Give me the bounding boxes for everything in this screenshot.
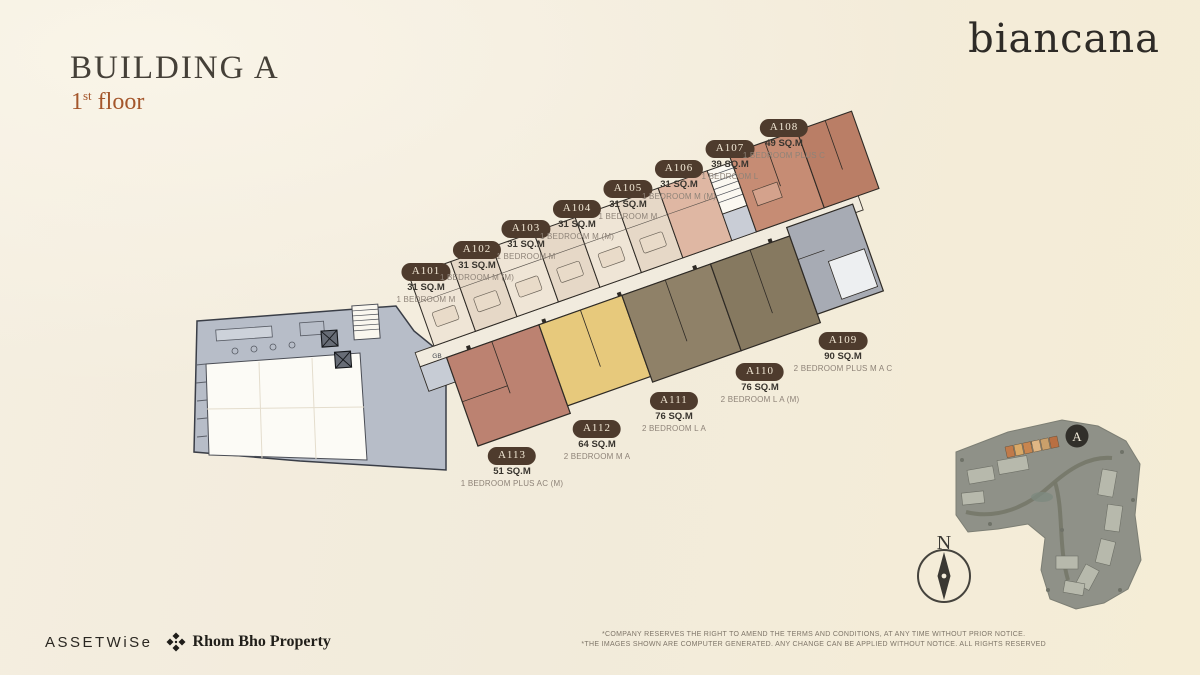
unit-badge: A110 <box>736 363 784 381</box>
unit-label-a110: A110 76 SQ.M 2 BEDROOM L A (M) <box>721 361 800 404</box>
disclaimer: *COMPANY RESERVES THE RIGHT TO AMEND THE… <box>581 630 1046 650</box>
unit-sqm: 31 SQ.M <box>540 220 614 231</box>
unit-type: 2 BEDROOM M A <box>564 452 631 461</box>
unit-sqm: 31 SQ.M <box>396 283 455 294</box>
rhombho-logo-text: Rhom Bho Property <box>193 633 331 651</box>
gb-room-label: GB <box>432 353 441 360</box>
unit-badge: A112 <box>573 420 621 438</box>
disclaimer-line-1: *COMPANY RESERVES THE RIGHT TO AMEND THE… <box>581 630 1046 640</box>
unit-type: 1 BEDROOM M <box>598 212 657 221</box>
unit-sqm: 31 SQ.M <box>598 200 657 211</box>
unit-label-a113: A113 51 SQ.M 1 BEDROOM PLUS AC (M) <box>461 445 563 488</box>
unit-sqm: 31 SQ.M <box>496 240 555 251</box>
unit-type: 2 BEDROOM L A (M) <box>721 395 800 404</box>
unit-badge: A102 <box>453 241 501 259</box>
unit-type: 1 BEDROOM M <box>396 295 455 304</box>
unit-sqm: 51 SQ.M <box>461 467 563 478</box>
unit-sqm: 31 SQ.M <box>642 180 716 191</box>
site-building-a-badge: A <box>1066 425 1089 448</box>
page: BUILDING A 1st floor biancana <box>0 0 1200 675</box>
unit-type: 1 BEDROOM PLUS AC (M) <box>461 479 563 488</box>
unit-badge: A108 <box>760 119 808 137</box>
unit-type: 1 BEDROOM M (M) <box>642 192 716 201</box>
unit-type: 1 BEDROOM M (M) <box>540 232 614 241</box>
unit-type: 2 BEDROOM PLUS M A C <box>794 364 893 373</box>
unit-sqm: 76 SQ.M <box>642 412 706 423</box>
unit-badge: A113 <box>488 447 536 465</box>
unit-type: 1 BEDROOM PLUS C <box>743 151 825 160</box>
podium-block <box>194 304 446 470</box>
unit-badge: A106 <box>655 160 703 178</box>
unit-sqm: 49 SQ.M <box>743 139 825 150</box>
unit-badge: A104 <box>553 200 601 218</box>
site-badge-letter: A <box>1072 429 1082 444</box>
unit-label-a111: A111 76 SQ.M 2 BEDROOM L A <box>642 390 706 433</box>
unit-label-a108: A108 49 SQ.M 1 BEDROOM PLUS C <box>743 117 825 160</box>
unit-sqm: 90 SQ.M <box>794 352 893 363</box>
stair-core <box>352 304 380 340</box>
rhombho-logo-wrap: Rhom Bho Property <box>166 632 331 652</box>
unit-badge: A109 <box>819 332 867 350</box>
unit-type: 1 BEDROOM L <box>702 172 759 181</box>
site-plan-inset: A <box>956 420 1141 609</box>
unit-sqm: 64 SQ.M <box>564 440 631 451</box>
unit-sqm: 76 SQ.M <box>721 383 800 394</box>
unit-sqm: 31 SQ.M <box>440 261 514 272</box>
unit-type: 1 BEDROOM M <box>496 252 555 261</box>
disclaimer-line-2: *THE IMAGES SHOWN ARE COMPUTER GENERATED… <box>581 640 1046 650</box>
unit-label-a112: A112 64 SQ.M 2 BEDROOM M A <box>564 418 631 461</box>
unit-sqm: 39 SQ.M <box>702 160 759 171</box>
unit-type: 2 BEDROOM L A <box>642 424 706 433</box>
footer-logos: ASSETWiSe Rhom Bho Property <box>45 632 331 652</box>
rhombho-diamond-icon <box>166 632 186 652</box>
assetwise-logo: ASSETWiSe <box>45 634 153 651</box>
unit-type: 1 BEDROOM M (M) <box>440 273 514 282</box>
unit-badge: A111 <box>650 392 698 410</box>
unit-label-a109: A109 90 SQ.M 2 BEDROOM PLUS M A C <box>794 330 893 373</box>
floor-plan-graphic: GB <box>0 0 1200 675</box>
compass: N <box>918 532 970 602</box>
